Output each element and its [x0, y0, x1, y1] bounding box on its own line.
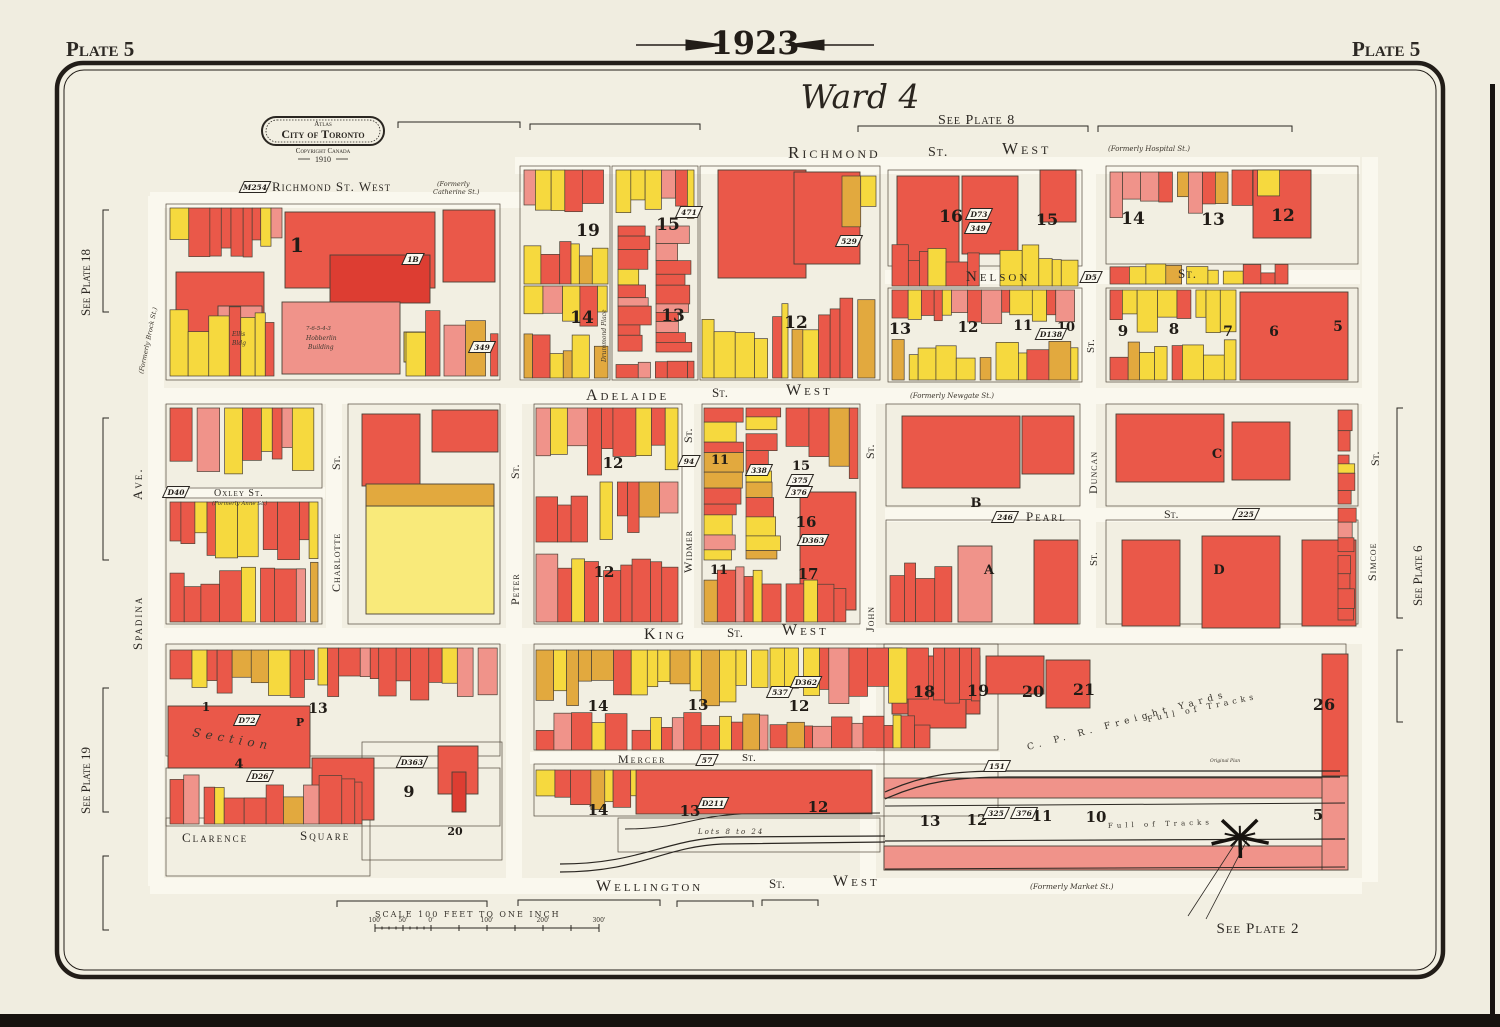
- building: [328, 648, 339, 697]
- block-number: 12: [808, 798, 829, 816]
- building: [379, 648, 396, 696]
- building: [656, 285, 690, 304]
- building: [893, 715, 901, 748]
- building: [936, 346, 956, 380]
- building: [656, 261, 691, 275]
- building: [309, 502, 318, 559]
- building: [958, 546, 992, 622]
- building: [550, 408, 567, 454]
- block-number: 16: [796, 513, 817, 531]
- building: [290, 650, 304, 697]
- plate-marker: D363: [801, 536, 824, 545]
- building: [170, 310, 188, 376]
- building: [1177, 172, 1188, 197]
- block-number: 12: [1271, 206, 1295, 226]
- building: [304, 785, 320, 824]
- building: [342, 779, 355, 824]
- building: [296, 569, 305, 622]
- building: [662, 567, 678, 622]
- building: [743, 714, 760, 750]
- building: [632, 559, 650, 622]
- building: [704, 535, 735, 550]
- street-label: Nelson: [966, 269, 1030, 285]
- building: [442, 648, 457, 683]
- building: [656, 274, 685, 285]
- plate-marker: 1B: [407, 255, 419, 264]
- block-number: 20: [447, 825, 463, 838]
- building: [1196, 290, 1206, 317]
- block-number: 12: [958, 318, 979, 336]
- building: [579, 256, 592, 284]
- building: [818, 584, 834, 622]
- building: [567, 650, 579, 706]
- building: [904, 563, 915, 622]
- block-number: 1: [202, 700, 210, 714]
- building: [618, 298, 648, 306]
- building: [665, 408, 678, 470]
- building: [217, 650, 232, 693]
- building: [770, 725, 787, 748]
- building: [1275, 264, 1288, 284]
- street-label: Ave.: [130, 467, 145, 500]
- building: [224, 798, 244, 824]
- building: [592, 650, 614, 680]
- building: [636, 770, 872, 814]
- street-label: Oxley St.: [214, 488, 264, 499]
- block-number: 1: [290, 233, 304, 257]
- building: [809, 408, 829, 457]
- plate-marker: 94: [684, 457, 694, 466]
- block-number: 14: [588, 697, 609, 715]
- building: [918, 348, 936, 380]
- building: [840, 298, 853, 378]
- building: [849, 408, 858, 479]
- building: [1202, 172, 1215, 204]
- building: [942, 290, 951, 315]
- building: [1110, 290, 1122, 320]
- building: [1155, 346, 1167, 380]
- building: [362, 414, 420, 486]
- map-annotation: Bldg: [231, 340, 246, 347]
- building: [195, 502, 207, 533]
- year-title: 1923: [710, 24, 799, 62]
- block-number: 19: [967, 681, 989, 700]
- building: [1338, 608, 1353, 620]
- building: [1338, 589, 1354, 609]
- building: [651, 717, 662, 750]
- building: [863, 716, 884, 748]
- building: [251, 650, 268, 683]
- plate-marker: D72: [238, 716, 256, 725]
- street-label: Widmer: [681, 530, 695, 573]
- street-label: King: [644, 626, 687, 643]
- block-number: 17: [798, 565, 819, 583]
- plate-marker: 151: [989, 762, 1005, 771]
- building: [1158, 290, 1177, 317]
- scale-tick-label: 200': [536, 917, 549, 924]
- building: [1215, 172, 1228, 204]
- block-number: 21: [1073, 680, 1095, 699]
- building: [1338, 556, 1351, 574]
- plate-marker: 375: [792, 476, 808, 485]
- plate-marker: D362: [794, 678, 817, 687]
- building: [704, 488, 741, 504]
- building: [618, 335, 642, 351]
- building: [429, 648, 442, 682]
- building: [1204, 355, 1225, 380]
- building: [1116, 414, 1224, 482]
- building: [571, 713, 592, 750]
- building: [980, 358, 991, 380]
- block-number: 11: [710, 563, 728, 578]
- building: [746, 417, 777, 430]
- building: [563, 351, 572, 378]
- map-sheet: Plate 5 Plate 5 1923 Ward 4 Atlas City o…: [0, 0, 1500, 1027]
- building: [1047, 290, 1056, 315]
- building: [170, 650, 192, 679]
- building: [1034, 540, 1078, 624]
- building: [238, 502, 259, 557]
- building: [981, 290, 1001, 324]
- building: [283, 797, 303, 824]
- building: [849, 648, 868, 696]
- building: [746, 551, 777, 559]
- building: [946, 262, 968, 286]
- building: [241, 567, 255, 622]
- block-number: 19: [576, 221, 600, 241]
- building: [786, 584, 804, 622]
- building: [1002, 290, 1010, 312]
- building: [639, 482, 659, 517]
- block-number: 5: [1333, 319, 1343, 335]
- building: [587, 408, 601, 475]
- building: [928, 248, 946, 286]
- plate-marker: 338: [751, 466, 767, 475]
- street-label: St.: [769, 876, 785, 891]
- map-annotation: 7-6-5-4-3: [306, 326, 331, 332]
- building: [704, 422, 736, 442]
- block-number: C: [1212, 447, 1222, 462]
- building: [220, 571, 242, 622]
- building: [567, 408, 587, 446]
- building: [207, 502, 215, 555]
- building: [660, 482, 678, 513]
- building: [272, 408, 282, 459]
- building: [535, 170, 551, 210]
- block-number: 12: [603, 454, 624, 472]
- building: [311, 562, 318, 622]
- building: [536, 730, 554, 750]
- plate-marker: D138: [1039, 330, 1063, 339]
- block-number: A: [983, 563, 995, 578]
- building: [550, 354, 563, 378]
- building: [1224, 340, 1236, 380]
- building: [645, 170, 661, 209]
- building: [852, 723, 863, 748]
- building: [1122, 290, 1137, 314]
- building: [243, 408, 262, 460]
- street-label: Clarence: [182, 830, 248, 845]
- building: [1032, 290, 1046, 321]
- building: [261, 408, 272, 451]
- scan-edge-bottom: [0, 1014, 1500, 1027]
- street-label: Wellington: [596, 878, 703, 895]
- building: [572, 335, 589, 378]
- street-label: Richmond St. West: [272, 179, 391, 194]
- plate-reference-label: See Plate 8: [938, 113, 1015, 128]
- building: [602, 408, 613, 449]
- building: [616, 170, 631, 213]
- building: [884, 778, 1346, 798]
- scale-tick-label: 50': [398, 917, 408, 924]
- building: [536, 770, 555, 796]
- building: [820, 648, 829, 689]
- building: [1188, 172, 1202, 213]
- block-number: 13: [661, 306, 685, 326]
- building: [909, 355, 918, 380]
- street-label: (Formerly: [437, 180, 470, 188]
- building: [571, 770, 591, 805]
- building: [714, 332, 735, 378]
- building: [890, 576, 904, 622]
- building: [719, 650, 736, 702]
- building: [215, 502, 237, 558]
- building: [613, 770, 631, 807]
- building: [1338, 464, 1355, 473]
- building: [618, 285, 646, 298]
- building: [631, 650, 647, 695]
- street-label: St.: [681, 428, 695, 443]
- building: [1206, 290, 1220, 333]
- scale-tick-label: 100': [480, 917, 493, 924]
- building: [197, 408, 220, 472]
- scan-edge-right: [1490, 84, 1495, 1014]
- building: [319, 776, 342, 824]
- building: [762, 584, 781, 622]
- building: [945, 648, 960, 703]
- building: [613, 408, 636, 456]
- building: [746, 408, 781, 417]
- plate-marker: 246: [996, 513, 1013, 522]
- building: [1338, 508, 1356, 522]
- building: [1110, 357, 1128, 380]
- building: [830, 309, 840, 378]
- block-number: 12: [789, 697, 810, 715]
- building: [667, 361, 687, 378]
- building: [582, 170, 603, 204]
- building: [560, 242, 571, 284]
- building: [1202, 536, 1280, 628]
- street-label: Mercer: [618, 752, 666, 766]
- building: [614, 650, 632, 695]
- building: [261, 208, 271, 246]
- building: [704, 408, 743, 422]
- block-number: B: [971, 496, 982, 511]
- building: [647, 650, 657, 687]
- street-label: John: [863, 606, 877, 632]
- building: [410, 648, 428, 700]
- building: [787, 722, 804, 748]
- building: [1027, 350, 1049, 380]
- street-label: Peter: [508, 573, 522, 605]
- logo-city: City of Toronto: [281, 127, 364, 141]
- building: [996, 342, 1018, 380]
- building: [1022, 416, 1074, 474]
- building: [1010, 290, 1033, 315]
- building: [704, 472, 742, 488]
- building: [278, 502, 300, 560]
- building: [892, 339, 904, 380]
- building: [232, 650, 251, 677]
- street-label: St.: [1088, 552, 1100, 566]
- building: [753, 570, 762, 622]
- building: [921, 290, 934, 315]
- building: [536, 554, 558, 622]
- building: [605, 770, 613, 802]
- plate-marker: D5: [1084, 273, 1097, 282]
- street-label: (Formerly Newgate St.): [910, 392, 994, 400]
- building: [1243, 264, 1261, 284]
- building: [892, 245, 908, 286]
- street-label: St.: [329, 455, 343, 470]
- building: [618, 250, 648, 270]
- block-number: P: [296, 716, 304, 729]
- plate-marker: 349: [970, 224, 986, 233]
- building: [760, 715, 768, 750]
- building: [600, 482, 612, 539]
- building: [1232, 170, 1253, 205]
- building: [571, 244, 579, 284]
- building: [266, 785, 283, 824]
- building: [271, 208, 282, 238]
- building: [181, 502, 195, 544]
- building: [617, 482, 627, 516]
- street-label: Duncan: [1086, 451, 1100, 494]
- building: [704, 442, 744, 452]
- building: [736, 650, 747, 685]
- street-label: St.: [1085, 339, 1097, 353]
- building: [1159, 172, 1173, 202]
- building: [215, 787, 224, 824]
- building: [1128, 342, 1139, 380]
- building: [543, 286, 563, 313]
- building: [554, 713, 572, 750]
- building: [832, 717, 852, 748]
- building: [524, 246, 541, 284]
- building: [935, 567, 952, 622]
- scale-tick-label: 100': [368, 917, 381, 924]
- building: [533, 335, 550, 378]
- block-number: 13: [889, 319, 911, 338]
- building: [366, 506, 494, 614]
- street-label: Simcoe: [1365, 543, 1379, 581]
- building: [1146, 264, 1166, 284]
- building: [184, 775, 199, 824]
- building: [265, 322, 274, 376]
- building: [792, 329, 803, 378]
- building: [1338, 522, 1352, 538]
- street-label: West: [1002, 139, 1051, 158]
- building: [1208, 270, 1218, 284]
- building: [536, 497, 558, 542]
- building: [892, 290, 908, 318]
- plate-reference-label: See Plate 2: [1216, 921, 1299, 937]
- street-label: St.: [928, 145, 948, 160]
- building: [1071, 348, 1078, 380]
- building: [746, 482, 772, 497]
- building: [655, 362, 667, 378]
- block-number: 20: [1022, 682, 1044, 701]
- building: [192, 650, 207, 687]
- building: [813, 726, 832, 748]
- building: [746, 434, 777, 451]
- building: [355, 782, 362, 824]
- building: [744, 576, 753, 622]
- building: [1137, 290, 1157, 332]
- building: [554, 650, 567, 691]
- building: [1232, 422, 1290, 480]
- street-label: Charlotte: [329, 533, 343, 592]
- building: [618, 236, 650, 250]
- building: [304, 650, 314, 680]
- building: [746, 517, 776, 536]
- building: [170, 408, 192, 461]
- building: [1052, 260, 1061, 286]
- building: [1172, 346, 1182, 380]
- street-label: (Formerly Market St.): [1030, 882, 1114, 891]
- building: [618, 226, 645, 236]
- block-number: 11: [1013, 318, 1032, 334]
- building: [834, 589, 846, 622]
- building: [444, 325, 466, 376]
- street-label: Richmond: [788, 143, 881, 162]
- building: [524, 286, 543, 314]
- plate-label-right: Plate 5: [1352, 37, 1420, 61]
- map-annotation: Original Plan: [1210, 758, 1240, 764]
- building: [618, 306, 651, 325]
- building: [1110, 267, 1129, 284]
- plate-marker: 376: [1016, 809, 1032, 818]
- building: [658, 650, 670, 682]
- building: [1122, 540, 1180, 626]
- block-number: 15: [792, 459, 810, 474]
- street-label: St.: [712, 385, 728, 400]
- building: [701, 725, 719, 750]
- building: [704, 580, 717, 622]
- building: [1338, 455, 1349, 464]
- building: [571, 496, 587, 542]
- plate-marker: D363: [400, 758, 423, 767]
- street-label: Spadina: [130, 596, 145, 650]
- building: [688, 361, 694, 378]
- building: [819, 315, 831, 378]
- building: [618, 269, 639, 285]
- building: [1322, 776, 1348, 870]
- ward-title: Ward 4: [800, 77, 919, 116]
- building: [718, 170, 806, 278]
- building: [524, 334, 533, 378]
- building: [255, 313, 265, 376]
- building: [189, 208, 210, 257]
- building: [670, 650, 690, 684]
- building: [661, 170, 675, 198]
- building: [524, 170, 535, 205]
- building: [491, 334, 498, 376]
- building: [551, 170, 565, 211]
- building: [672, 718, 683, 750]
- building: [292, 408, 314, 470]
- building: [684, 713, 701, 750]
